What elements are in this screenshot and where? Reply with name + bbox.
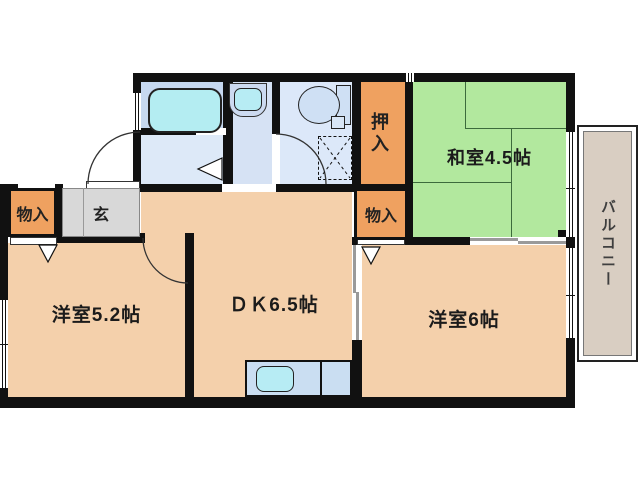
balcony-floor: バルコニー bbox=[583, 131, 632, 356]
window-tick bbox=[566, 295, 575, 296]
window-tick bbox=[566, 188, 575, 189]
washbasin bbox=[234, 88, 262, 111]
sliding-door-panel bbox=[470, 238, 518, 241]
kitchen-counter-divider bbox=[320, 360, 322, 397]
bedroom-left-room-label-box: 洋室5.2帖 bbox=[8, 300, 185, 326]
genkan-box: 玄 bbox=[62, 188, 140, 237]
bedroom-right-label: 洋室6帖 bbox=[428, 305, 500, 332]
storage-left-label: 物入 bbox=[16, 201, 48, 225]
bathtub bbox=[148, 88, 222, 133]
washitsu-label: 和室4.5帖 bbox=[447, 144, 532, 170]
toilet-button bbox=[331, 116, 345, 129]
storage-left-sliding-door bbox=[10, 237, 57, 245]
tatami-line bbox=[465, 82, 466, 128]
window-frame bbox=[411, 73, 412, 82]
window-frame bbox=[572, 248, 573, 338]
washroom-floor bbox=[141, 135, 226, 184]
oshiire-label-box: 押入 bbox=[352, 82, 406, 186]
sliding-door-panel bbox=[356, 292, 359, 340]
tatami-line bbox=[465, 128, 566, 129]
balcony-label: バルコニー bbox=[597, 199, 618, 289]
kitchen-sink bbox=[256, 366, 294, 392]
sliding-door-panel bbox=[518, 241, 566, 244]
wall-mid-seg3 bbox=[276, 184, 361, 192]
storage-right-label: 物入 bbox=[365, 202, 397, 226]
window-tick bbox=[0, 344, 8, 345]
sliding-door-panel bbox=[353, 245, 356, 293]
toilet-door-gap bbox=[272, 134, 280, 184]
genkan-label: 玄 bbox=[93, 201, 109, 225]
window-frame bbox=[572, 132, 573, 237]
wall-bedroom-right-top bbox=[405, 237, 470, 245]
genkan-step-line bbox=[83, 188, 84, 237]
wall-toilet-divider bbox=[272, 82, 280, 134]
window-bedroom-right-balcony bbox=[566, 248, 575, 338]
wall-bedroom-left-dk bbox=[185, 233, 194, 397]
wall-dk-bedroom-right-lower bbox=[352, 340, 362, 397]
wall-mid-seg2 bbox=[140, 184, 222, 192]
window-frame bbox=[569, 132, 570, 237]
tatami-line bbox=[413, 182, 511, 183]
bedroom-left-label: 洋室5.2帖 bbox=[52, 300, 141, 327]
dk-label: ＤＫ6.5帖 bbox=[229, 290, 318, 317]
washitsu-room-label-box: 和室4.5帖 bbox=[413, 144, 566, 170]
oshiire-label: 押入 bbox=[366, 112, 392, 156]
window-frame bbox=[138, 93, 139, 130]
wall-bottom bbox=[0, 397, 575, 408]
washing-machine-space bbox=[318, 136, 352, 180]
storage-right-box: 物入 bbox=[354, 188, 408, 240]
dk-room-label-box: ＤＫ6.5帖 bbox=[196, 290, 352, 316]
bedroom-right-room-label-box: 洋室6帖 bbox=[362, 305, 566, 331]
window-frame bbox=[569, 248, 570, 338]
storage-left-box: 物入 bbox=[8, 188, 57, 237]
window-washitsu-balcony bbox=[566, 132, 575, 237]
window-frame bbox=[135, 93, 136, 130]
floorplan-canvas: 物入 物入 玄 バルコニー 和室4.5帖 ＤＫ6.5帖 洋室5.2帖 bbox=[0, 0, 640, 480]
window-frame bbox=[408, 73, 409, 82]
